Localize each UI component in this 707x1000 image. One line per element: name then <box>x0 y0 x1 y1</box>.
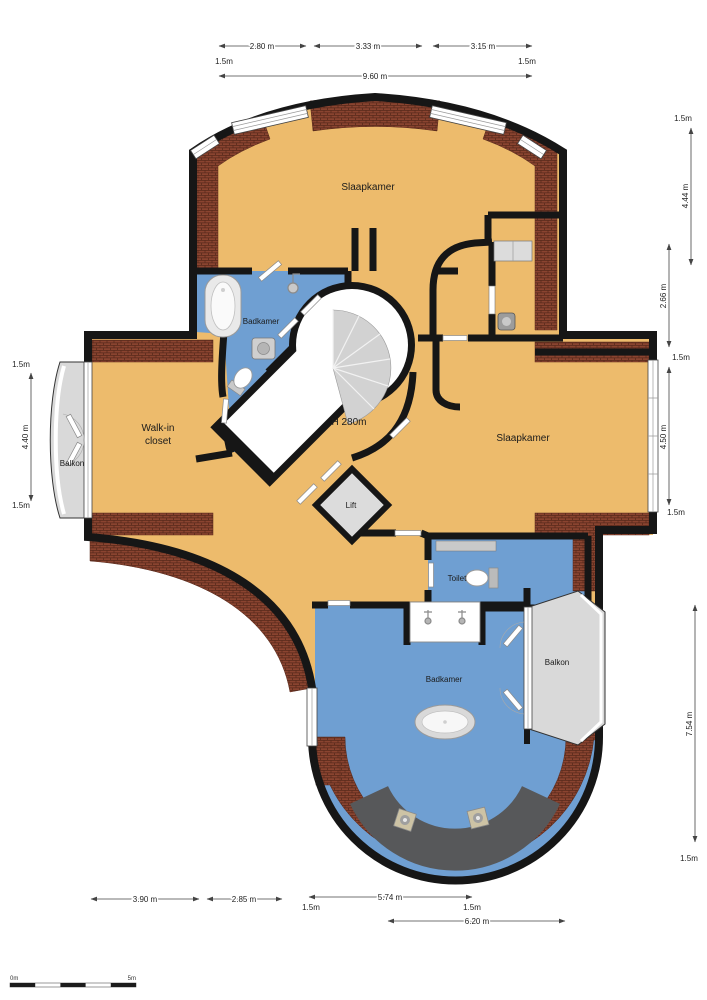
dim-right-margin-mid1: 1.5m <box>672 353 690 362</box>
sink-top <box>252 338 275 359</box>
window-lower-left <box>307 688 317 746</box>
dim-bottom-margin-left: 1.5m <box>302 903 320 912</box>
dim-right-mid: 2.66 m <box>659 283 668 308</box>
room-label-bedroom-right: Slaapkamer <box>496 433 550 444</box>
scale-bar: 0m 5m <box>10 976 136 987</box>
window-nook <box>489 286 495 314</box>
dim-right-lower: 4.50 m <box>659 424 668 449</box>
room-label-bedroom-top: Slaapkamer <box>341 182 395 193</box>
dim-top-margin-left: 1.5m <box>215 57 233 66</box>
dim-top-total: 9.60 m <box>363 72 388 81</box>
toilet-bottom <box>466 568 498 588</box>
shower-tray <box>467 807 489 829</box>
room-label-bathroom-bottom: Badkamer <box>426 675 463 684</box>
balcony-left <box>50 362 92 518</box>
room-label-height: H 280m <box>331 417 366 428</box>
floor-plan: Slaapkamer Badkamer Walk-in closet H 280… <box>0 0 707 1000</box>
dim-left-margin-bottom: 1.5m <box>12 501 30 510</box>
dim-right-margin-mid2: 1.5m <box>667 508 685 517</box>
dim-bottom-total: 6.20 m <box>465 917 490 926</box>
bathtub-bottom <box>415 705 475 739</box>
vanity <box>410 602 480 642</box>
room-label-balcony-right: Balkon <box>545 658 569 667</box>
dim-left-height: 4.40 m <box>21 424 30 449</box>
cabinet-nook <box>494 241 532 261</box>
dim-right-margin-bottom: 1.5m <box>680 854 698 863</box>
scale-bar-end: 5m <box>128 976 136 982</box>
dim-right-bottom: 7.54 m <box>685 711 694 736</box>
window-bedroom-right <box>648 360 658 512</box>
room-label-lift: Lift <box>346 501 357 510</box>
dim-bottom-margin-right: 1.5m <box>463 903 481 912</box>
dim-left-margin-top: 1.5m <box>12 360 30 369</box>
room-label-bathroom-top: Badkamer <box>243 317 280 326</box>
room-label-toilet: Toilet <box>448 574 467 583</box>
dim-bottom-seg1: 3.90 m <box>133 895 158 904</box>
floor-plan-canvas: Slaapkamer Badkamer Walk-in closet H 280… <box>0 0 707 1000</box>
dim-top-margin-right: 1.5m <box>518 57 536 66</box>
dim-right-margin-top: 1.5m <box>674 114 692 123</box>
cistern-toilet-room <box>436 541 496 551</box>
dim-bottom-seg3: 5.74 m <box>378 893 403 902</box>
dim-top-seg1: 2.80 m <box>250 42 275 51</box>
bathtub-top <box>205 275 241 337</box>
scale-bar-start: 0m <box>10 976 18 982</box>
room-label-walkin-2: closet <box>145 436 171 447</box>
room-label-walkin-1: Walk-in <box>142 423 175 434</box>
dim-top-seg2: 3.33 m <box>356 42 381 51</box>
room-label-balcony-left: Balkon <box>60 459 84 468</box>
dim-bottom-seg2: 2.85 m <box>232 895 257 904</box>
dim-right-upper: 4.44 m <box>681 183 690 208</box>
dim-top-seg3: 3.15 m <box>471 42 496 51</box>
sink-nook <box>498 313 515 330</box>
